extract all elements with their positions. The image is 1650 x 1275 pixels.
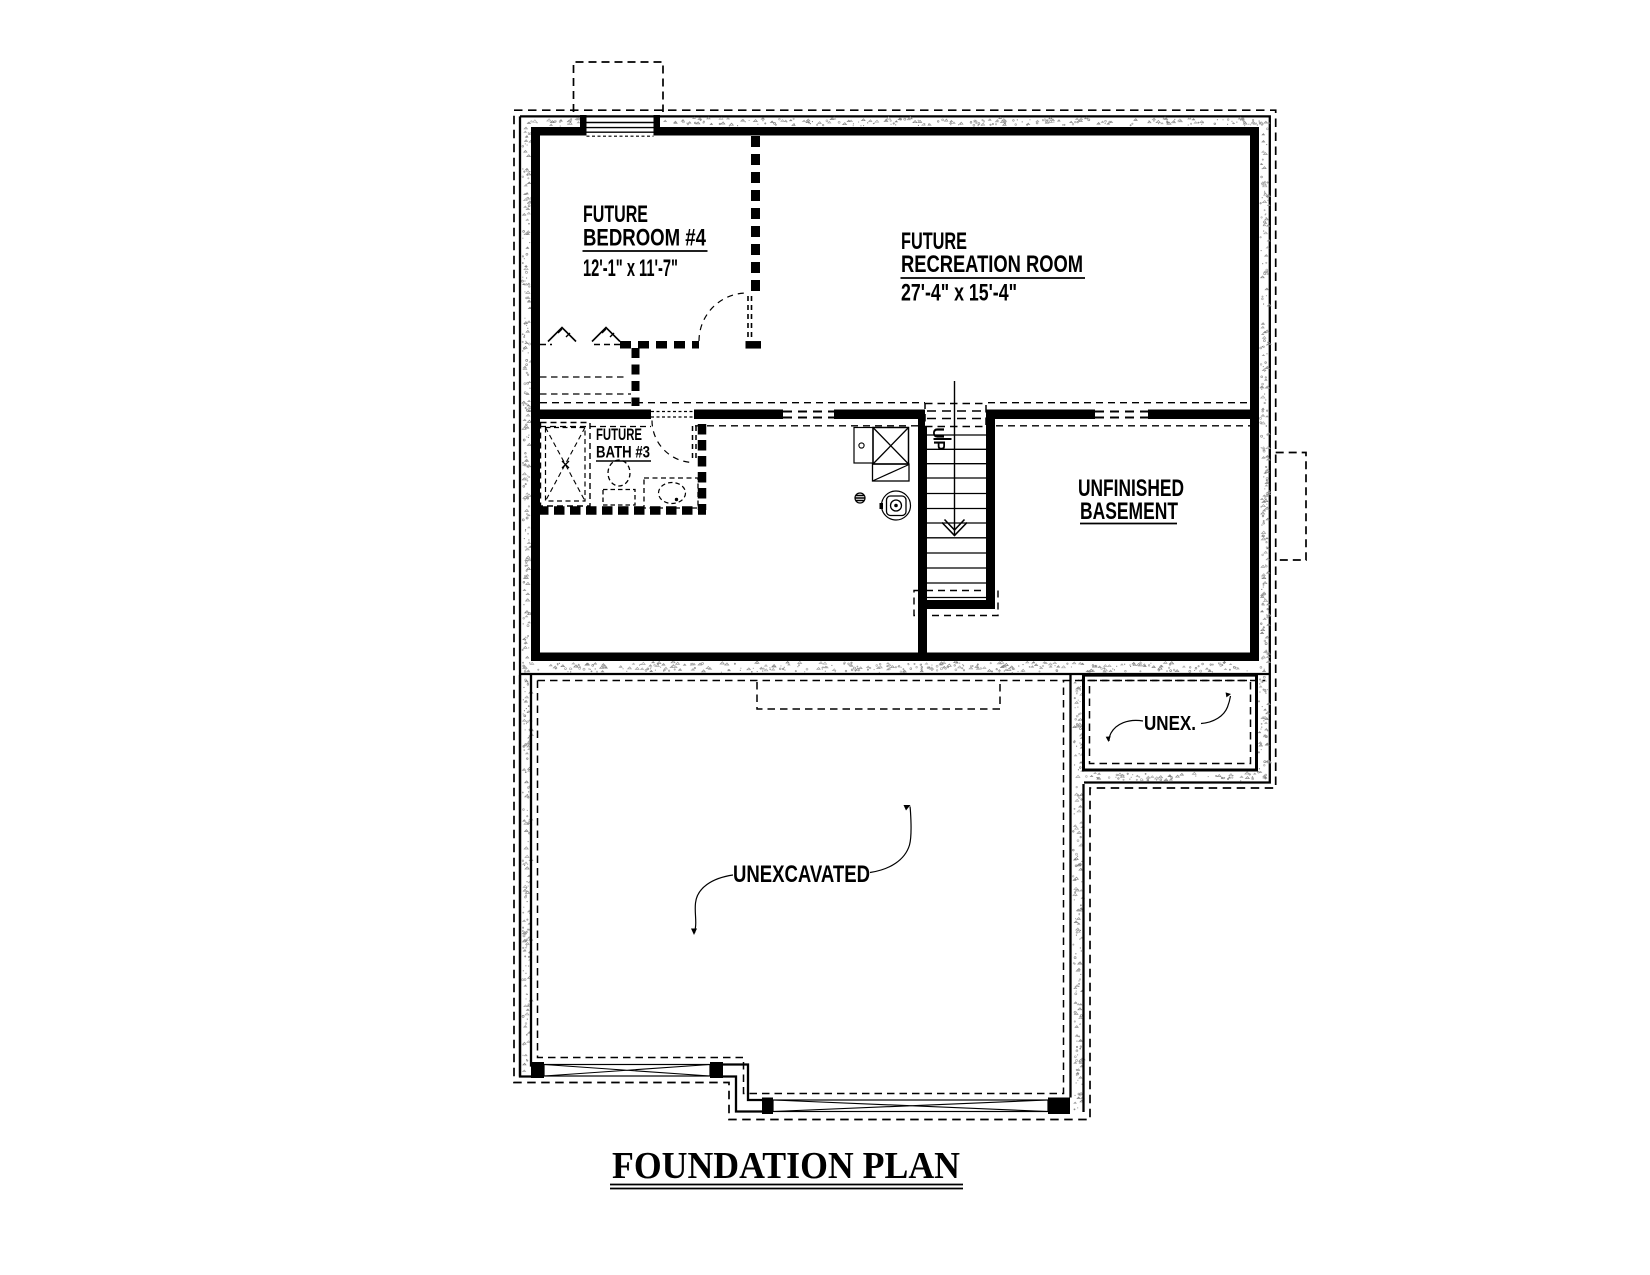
svg-text:UNEX.: UNEX. xyxy=(1144,713,1196,735)
svg-text:P: P xyxy=(930,441,947,451)
svg-text:FOUNDATION PLAN: FOUNDATION PLAN xyxy=(612,1145,960,1187)
svg-text:U: U xyxy=(929,428,946,439)
svg-text:BASEMENT: BASEMENT xyxy=(1080,498,1178,525)
svg-text:UNEXCAVATED: UNEXCAVATED xyxy=(733,861,870,888)
svg-text:FUTURE: FUTURE xyxy=(596,426,642,444)
svg-text:12'-1" x 11'-7": 12'-1" x 11'-7" xyxy=(583,255,678,282)
svg-text:RECREATION ROOM: RECREATION ROOM xyxy=(901,251,1083,278)
svg-text:BEDROOM #4: BEDROOM #4 xyxy=(583,225,706,252)
svg-text:BATH #3: BATH #3 xyxy=(596,444,650,462)
svg-text:27'-4" x 15'-4": 27'-4" x 15'-4" xyxy=(901,280,1017,307)
